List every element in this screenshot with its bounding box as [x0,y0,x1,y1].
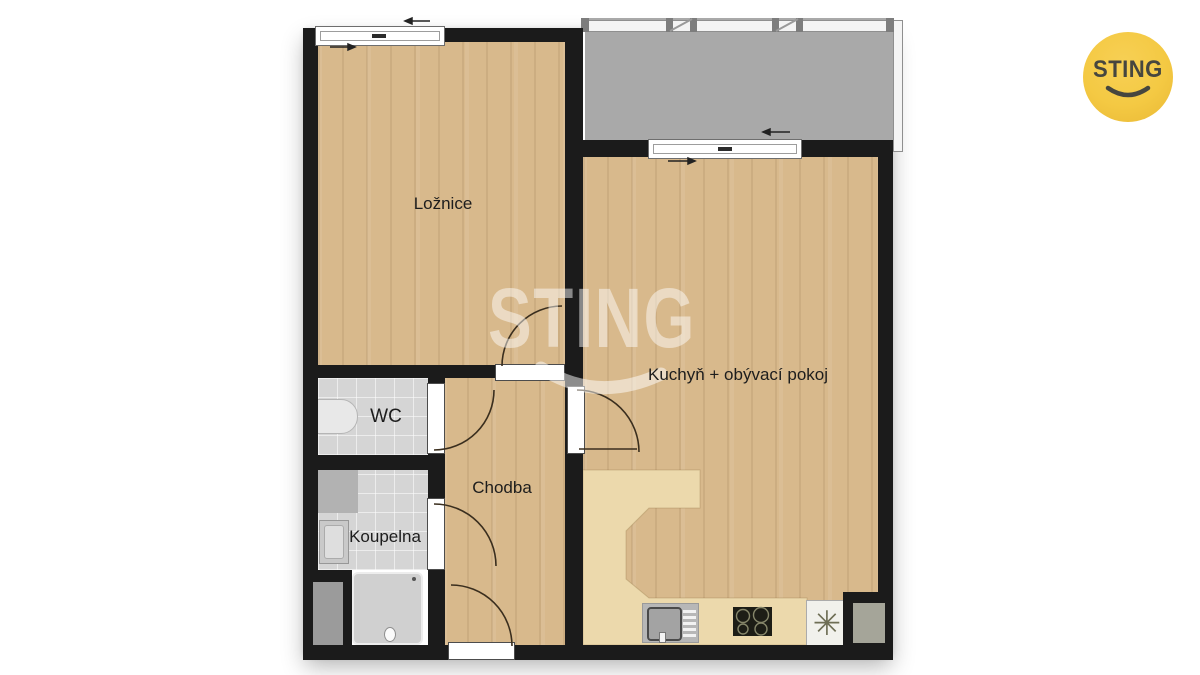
fridge-snowflake-icon: ✳ [813,607,842,641]
sting-logo: STING [1083,32,1173,122]
balcony-sliding-door [648,139,802,159]
drainer-line [683,610,696,613]
wall-right-outer [878,140,893,660]
utility-shaft-right [853,603,885,643]
fridge: ✳ [806,600,848,647]
room-label-kitchen-living: Kuchyň + obývací pokoj [648,365,828,385]
watermark-text: STING [488,276,696,360]
room-label-bathroom: Koupelna [349,527,421,547]
balcony-sliding-door-tick [718,147,732,151]
sting-logo-text: STING [1093,56,1163,84]
balcony-railing-top [583,20,895,32]
balcony-railing-post [796,18,803,32]
bedroom-door-frame [495,364,565,381]
room-label-bedroom: Ložnice [414,194,473,214]
floor-kitchen-living [583,157,878,645]
drainer-line [683,616,696,619]
toilet [316,399,358,434]
wall-left-outer [303,28,318,660]
balcony-floor [585,18,893,140]
bedroom-window [315,26,445,46]
bedroom-window-tick [372,34,386,38]
room-label-hallway: Chodba [472,478,532,498]
bathroom-sink-basin [324,525,344,559]
sting-logo-smile-icon [1100,84,1156,104]
balcony-railing-post [772,18,779,32]
balcony-railing-post [666,18,673,32]
drainer-line [683,628,696,631]
drainer-line [683,622,696,625]
bedroom-window-arrowhead [405,18,412,24]
balcony-railing-post [690,18,697,32]
bathroom-door-frame [427,498,445,570]
wc-door-frame [427,383,445,454]
kitchen-faucet [659,632,666,643]
kitchen-door-frame [567,386,585,454]
shower-faucet [412,577,416,581]
wall-wc-bathroom [303,455,445,470]
washing-machine [317,468,358,513]
bathroom-sink [319,520,349,564]
balcony-railing-post [886,18,894,32]
entry-door-frame [448,642,515,660]
floor-plan-page: ✳ S [0,0,1200,675]
drainer-line [683,634,696,637]
balcony-railing-right [893,20,903,152]
utility-shaft-left [313,582,343,645]
shower-drain [384,627,396,642]
cooktop [733,607,772,636]
floor-hallway [443,378,565,645]
wall-bottom-outer [303,645,893,660]
shower-tray [352,572,423,645]
room-label-wc: WC [370,406,402,428]
kitchen-sink-unit [642,603,699,643]
